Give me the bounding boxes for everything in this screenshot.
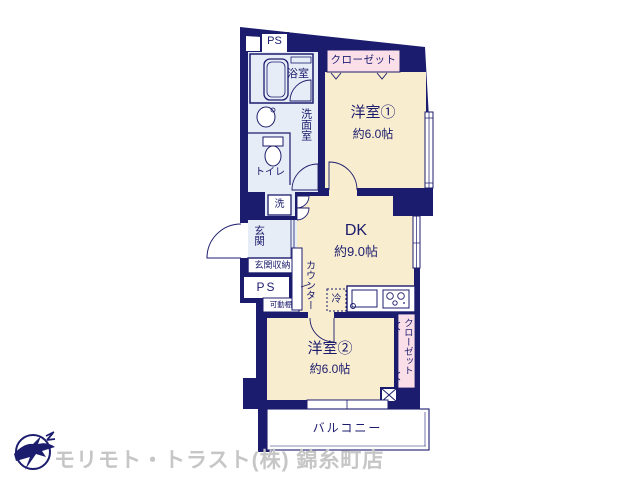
front-door-arc bbox=[207, 224, 241, 258]
wall-jog bbox=[393, 188, 433, 216]
bathroom-label: 浴室 bbox=[287, 68, 309, 81]
washer-label: 洗 bbox=[268, 199, 291, 211]
room2-floor bbox=[267, 318, 394, 400]
washroom-label: 洗面室 bbox=[299, 108, 312, 141]
toilet-label: トイレ bbox=[250, 167, 290, 179]
room2-balcony-window bbox=[307, 400, 388, 409]
room1-name: 洋室① bbox=[320, 104, 426, 121]
ps-left-label: PS bbox=[243, 281, 290, 295]
toilet-tank bbox=[263, 137, 283, 146]
room2-name: 洋室② bbox=[277, 340, 383, 357]
stove-dot bbox=[403, 302, 405, 304]
room1-size: 約6.0帖 bbox=[320, 128, 426, 142]
top-wedge bbox=[246, 36, 261, 51]
counter-label: カウンター bbox=[303, 260, 315, 310]
closet-top-label: クローゼット bbox=[327, 54, 400, 66]
room2-size: 約6.0帖 bbox=[277, 363, 383, 377]
floorplan-canvas: PS 浴室 クローゼット 洋室① 約6.0帖 洗面室 トイレ 洗 玄関 玄関収納… bbox=[0, 0, 640, 480]
front-door-gap bbox=[238, 223, 248, 258]
company-logo bbox=[14, 432, 55, 470]
ps-top-label: PS bbox=[261, 35, 288, 48]
dk-size: 約9.0帖 bbox=[300, 245, 412, 260]
bath-ledge bbox=[291, 57, 311, 63]
entrance-label: 玄関 bbox=[253, 225, 265, 246]
balcony-label: バルコニー bbox=[290, 422, 405, 436]
toilet-bowl bbox=[265, 146, 281, 166]
dk-window bbox=[413, 216, 420, 268]
closet-right-label: クローゼット bbox=[401, 318, 412, 375]
dk-name: DK bbox=[300, 222, 412, 240]
fridge-label: 冷 bbox=[327, 294, 346, 306]
washbasin-icon bbox=[257, 107, 275, 127]
sink-icon bbox=[352, 290, 377, 307]
room1-door-gap bbox=[329, 188, 357, 197]
movable-shelf-label: 可動棚 bbox=[263, 301, 299, 310]
room1-window bbox=[425, 112, 433, 188]
company-watermark: モリモト・トラスト(株) 錦糸町店 bbox=[54, 444, 384, 474]
room2-door-gap bbox=[308, 312, 334, 318]
entrance-storage-label: 玄関収納 bbox=[248, 260, 297, 270]
